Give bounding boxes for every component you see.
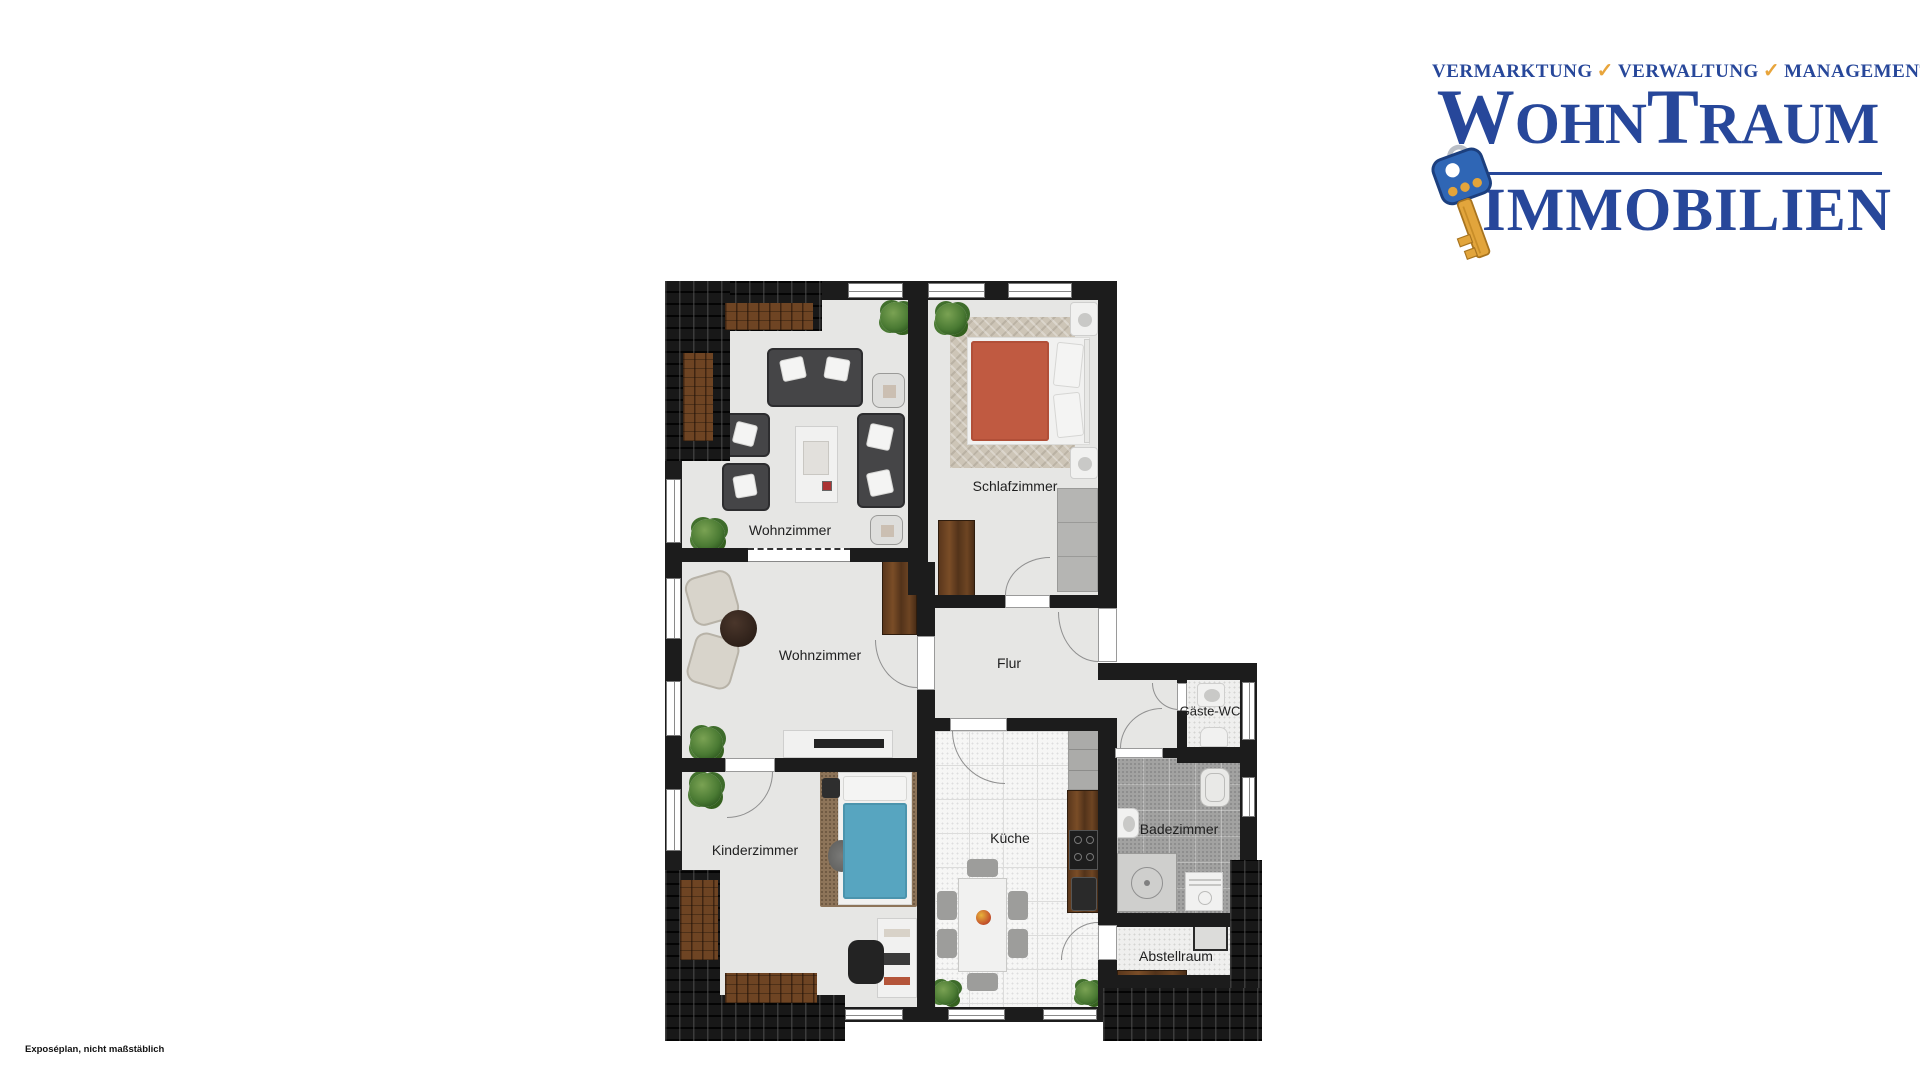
wall — [917, 758, 935, 1007]
room-label-badezimmer: Badezimmer — [1140, 821, 1219, 837]
bathtub — [1200, 768, 1230, 807]
floor-passage — [1098, 680, 1117, 720]
window — [666, 681, 681, 736]
nightstand — [1070, 447, 1098, 479]
tv-lowboard — [783, 730, 893, 758]
plant-icon — [933, 981, 959, 1005]
logo-brand-line2: IMMOBILIEN — [1482, 180, 1882, 241]
burner — [1074, 853, 1082, 861]
company-logo: VERMARKTUNG✓VERWALTUNG✓MANAGEMENT✓ WOHNT… — [1432, 40, 1884, 255]
deco — [822, 481, 832, 491]
kitchen-sink — [1071, 877, 1097, 911]
nightstand — [1070, 302, 1098, 336]
washing-machine — [1185, 872, 1223, 911]
key-icon — [1428, 144, 1500, 274]
round-table — [720, 610, 757, 647]
burner — [1086, 836, 1094, 844]
plant-icon — [691, 519, 725, 551]
basin — [1204, 689, 1220, 702]
desk-shelf — [884, 929, 910, 937]
sideboard — [938, 520, 975, 597]
bed-headboard — [1084, 339, 1090, 443]
bed-pillow — [1053, 342, 1084, 389]
side-table — [872, 373, 905, 408]
fruit-bowl — [976, 910, 991, 925]
wardrobe — [1057, 488, 1098, 592]
wardrobe-line — [1058, 522, 1097, 523]
toilet — [1200, 727, 1228, 747]
wardrobe-line — [1058, 556, 1097, 557]
lamp — [1078, 457, 1092, 471]
bed-duvet — [843, 803, 907, 899]
room-label-kueche: Küche — [990, 830, 1030, 846]
stove — [1069, 830, 1098, 870]
roof-ridge — [725, 303, 813, 330]
window — [928, 283, 985, 298]
door-frame — [1005, 595, 1050, 608]
bed-duvet — [971, 341, 1049, 441]
room-label-flur: Flur — [997, 655, 1021, 671]
entrance-door-frame — [1098, 608, 1117, 662]
sofa-pillow — [823, 356, 850, 382]
wall — [1105, 913, 1240, 927]
room-label-abstellraum: Abstellraum — [1139, 948, 1213, 964]
fridge-unit — [1068, 728, 1099, 790]
window — [848, 283, 903, 298]
wall — [682, 758, 725, 772]
wm-door — [1198, 891, 1212, 905]
chair — [967, 973, 998, 991]
burner — [1074, 836, 1082, 844]
brand-letters: RAUM — [1699, 91, 1879, 156]
room-label-wohnzimmer-top: Wohnzimmer — [749, 522, 831, 538]
sofa-pillow — [779, 356, 807, 383]
magazine — [803, 441, 829, 475]
unit-line — [1069, 770, 1098, 771]
plant-icon — [690, 727, 723, 760]
sofa-pillow — [866, 469, 894, 497]
bathtub-inner — [1205, 773, 1225, 802]
sofa — [767, 348, 863, 407]
window — [1043, 1009, 1097, 1020]
bath-sink — [1117, 808, 1139, 838]
wall — [682, 548, 748, 562]
window — [666, 789, 681, 851]
door-frame — [725, 758, 775, 772]
burner — [1086, 853, 1094, 861]
wm-line — [1189, 879, 1221, 881]
dining-table — [958, 878, 1007, 972]
office-chair — [848, 940, 884, 984]
window — [1242, 777, 1255, 817]
plant-icon — [935, 303, 967, 335]
brand-letter: T — [1647, 73, 1699, 160]
room-label-wohnzimmer-mitte: Wohnzimmer — [779, 647, 861, 663]
floor-plan: Wohnzimmer Schlafzimmer Wohnzimmer Flur … — [665, 281, 1262, 1041]
window — [1242, 682, 1255, 740]
side-table — [870, 515, 903, 545]
chair — [967, 859, 998, 877]
sofa-pillow — [732, 421, 759, 448]
roof-ridge — [725, 973, 817, 1003]
window — [666, 479, 681, 543]
lamp — [1078, 313, 1092, 327]
wall — [775, 758, 917, 772]
window — [1008, 283, 1072, 298]
brand-letters: OHN — [1515, 91, 1647, 156]
roof-ridge — [683, 353, 713, 441]
door-frame — [1115, 748, 1163, 758]
door-frame — [1098, 925, 1117, 960]
door-frame — [917, 636, 935, 690]
room-label-schlafzimmer: Schlafzimmer — [973, 478, 1058, 494]
chair — [1008, 929, 1028, 958]
room-opening — [748, 548, 850, 562]
bedside-box — [822, 778, 840, 798]
side-table-tray — [881, 525, 894, 537]
wall — [1098, 663, 1257, 680]
sofa — [857, 413, 905, 508]
monitor — [884, 953, 910, 965]
room-label-gaeste-wc: Gäste-WC — [1180, 704, 1241, 719]
wall — [850, 548, 928, 562]
chair — [937, 929, 957, 958]
wall — [1098, 281, 1117, 608]
scale-disclaimer: Exposéplan, nicht maßstäblich — [25, 1044, 164, 1055]
wall — [935, 718, 950, 731]
unit-line — [1069, 749, 1098, 750]
wm-line — [1189, 884, 1221, 886]
roof-ridge — [680, 880, 718, 960]
window — [666, 578, 681, 639]
wall — [1163, 748, 1177, 758]
armchair — [722, 463, 770, 511]
side-table-tray — [883, 385, 896, 398]
tv — [814, 739, 884, 748]
room-label-kinderzimmer: Kinderzimmer — [712, 842, 798, 858]
bed-pillow — [843, 776, 907, 801]
wall — [917, 690, 935, 758]
plant-icon — [689, 773, 722, 807]
wall — [1007, 718, 1117, 731]
door-frame — [950, 718, 1007, 731]
sofa-pillow — [732, 473, 757, 498]
wall — [1050, 595, 1098, 608]
wall — [928, 595, 1005, 608]
window — [948, 1009, 1005, 1020]
bed-pillow — [1053, 392, 1084, 439]
wall — [1177, 747, 1257, 763]
logo-divider — [1482, 172, 1882, 175]
coffee-table — [795, 426, 838, 503]
roof-overhang — [1103, 988, 1262, 1041]
shower — [1117, 853, 1177, 912]
chair — [937, 891, 957, 920]
drain — [1144, 880, 1150, 886]
window — [845, 1009, 903, 1020]
basin — [1123, 816, 1135, 832]
chair — [1008, 891, 1028, 920]
desk-books — [884, 977, 910, 985]
sofa-pillow — [866, 423, 894, 451]
